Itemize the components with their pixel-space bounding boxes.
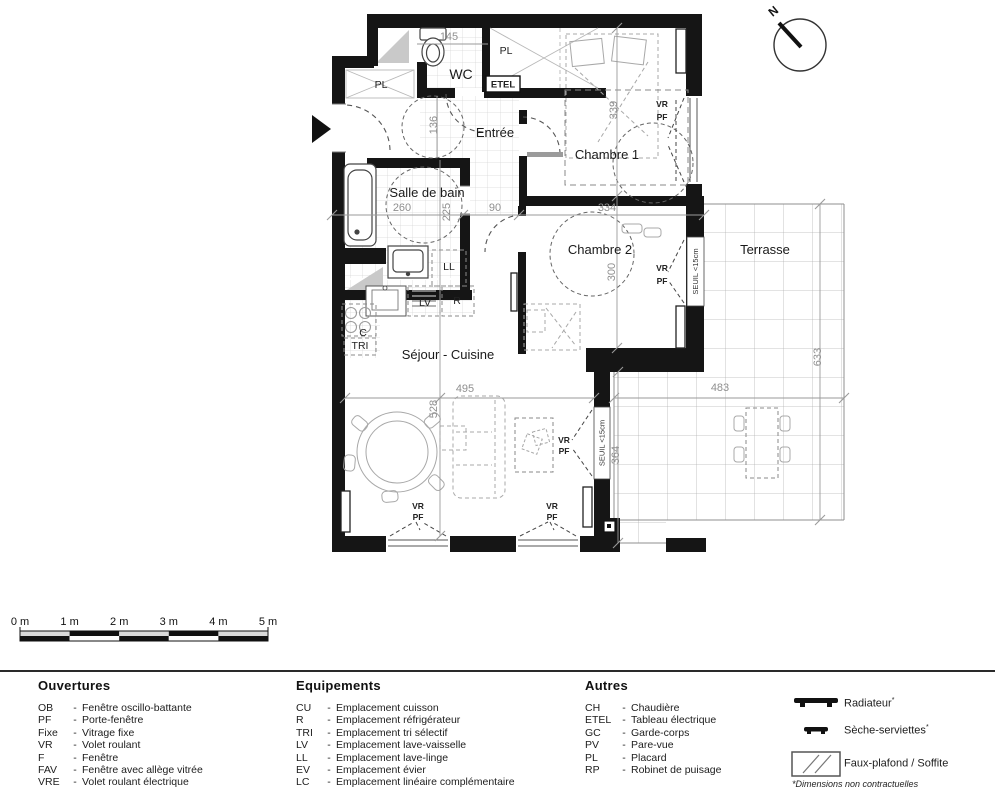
- legend-item: PL-Placard: [585, 752, 722, 764]
- room-label-entree: Entrée: [476, 125, 514, 140]
- north-label: N: [766, 3, 782, 19]
- dim-ch2-w: 334: [598, 202, 616, 214]
- legend-ouvertures-title: Ouvertures: [38, 678, 203, 693]
- r-label: R: [453, 295, 461, 307]
- dim-wc-w: 145: [440, 31, 458, 43]
- legend-item: GC-Garde-corps: [585, 727, 722, 739]
- room-label-chambre2: Chambre 2: [568, 242, 632, 257]
- vr-label-ch2: VR: [656, 263, 668, 273]
- legend-ouvertures: Ouvertures OB-Fenêtre oscillo-battante P…: [38, 678, 203, 789]
- legend-divider: [0, 670, 995, 672]
- dim-sejour-h: 528: [428, 400, 440, 418]
- legend-item: OB-Fenêtre oscillo-battante: [38, 702, 203, 714]
- legend-item: VRE-Volet roulant électrique: [38, 776, 203, 788]
- floor-plan-drawing: SEUIL <15cm SEUIL <15cm: [0, 0, 995, 668]
- floor-plan-page: SEUIL <15cm SEUIL <15cm: [0, 0, 995, 800]
- dim-sejour-w: 495: [456, 383, 474, 395]
- scale-3: 3 m: [160, 616, 178, 628]
- legend-item: PF-Porte-fenêtre: [38, 714, 203, 726]
- scale-4: 4 m: [209, 616, 227, 628]
- north-compass: N: [766, 3, 826, 71]
- vr-label-sejour-east: VR: [558, 435, 570, 445]
- room-label-terrasse: Terrasse: [740, 242, 790, 257]
- legend-footnote: *Dimensions non contractuelles: [792, 779, 918, 789]
- dim-terrasse-h: 633: [812, 348, 824, 366]
- legend-symbol-label: Sèche-serviettes*: [844, 724, 929, 737]
- legend-symbol-faux-plafond: Faux-plafond / Soffite: [788, 751, 993, 777]
- legend-item: LC-Emplacement linéaire complémentaire: [296, 776, 515, 788]
- dim-ch1-h: 339: [608, 101, 620, 119]
- legend-item: VR-Volet roulant: [38, 739, 203, 751]
- dim-bain-h: 225: [441, 203, 453, 221]
- scale-5: 5 m: [259, 616, 277, 628]
- pf-label-ch1: PF: [657, 112, 668, 122]
- dim-hall-w: 90: [489, 202, 501, 214]
- scale-bar: 0 m 1 m 2 m 3 m 4 m 5 m: [11, 616, 277, 641]
- etel-label: ETEL: [491, 80, 515, 91]
- dim-entree-w: 136: [428, 116, 440, 134]
- legend-item: FAV-Fenêtre avec allège vitrée: [38, 764, 203, 776]
- legend-symbol-label: Faux-plafond / Soffite: [844, 757, 948, 770]
- entrance-arrow-icon: [312, 115, 331, 143]
- pl-label-top: PL: [500, 45, 513, 57]
- legend-item: F-Fenêtre: [38, 752, 203, 764]
- legend-item: Fixe-Vitrage fixe: [38, 727, 203, 739]
- radiator-icon: [788, 696, 844, 710]
- legend-item: LV-Emplacement lave-vaisselle: [296, 739, 515, 751]
- faux-plafond-icon: [788, 751, 844, 777]
- pf-label-sejour-south2: PF: [547, 512, 558, 522]
- scale-0: 0 m: [11, 616, 29, 628]
- tri-label: TRI: [352, 340, 369, 352]
- legend-symbol-label: Radiateur*: [844, 697, 894, 710]
- vr-label-sejour-south1: VR: [412, 501, 424, 511]
- legend-item: TRI-Emplacement tri sélectif: [296, 727, 515, 739]
- pf-label-sejour-east: PF: [559, 446, 570, 456]
- scale-2: 2 m: [110, 616, 128, 628]
- legend-autres: Autres CH-Chaudière ETEL-Tableau électri…: [585, 678, 722, 776]
- dim-bain-w: 260: [393, 202, 411, 214]
- room-label-salle-de-bain: Salle de bain: [389, 185, 464, 200]
- pf-label-sejour-south1: PF: [413, 512, 424, 522]
- room-label-sejour: Séjour - Cuisine: [402, 347, 495, 362]
- legend-equipements-title: Equipements: [296, 678, 515, 693]
- legend-item: CU-Emplacement cuisson: [296, 702, 515, 714]
- legend-item: LL-Emplacement lave-linge: [296, 752, 515, 764]
- dim-terrasse-low-w: 483: [711, 382, 729, 394]
- lv-label: LV: [419, 297, 431, 309]
- legend-item: RP-Robinet de puisage: [585, 764, 722, 776]
- scale-bar-segments: [20, 627, 268, 641]
- legend-item: EV-Emplacement évier: [296, 764, 515, 776]
- legend-item: ETEL-Tableau électrique: [585, 714, 722, 726]
- dim-terrasse-low-h: 364: [610, 446, 622, 464]
- terrace: [614, 204, 844, 543]
- ll-label: LL: [443, 261, 455, 273]
- room-label-wc: WC: [449, 66, 472, 82]
- legend-item: R-Emplacement réfrigérateur: [296, 714, 515, 726]
- legend-item: CH-Chaudière: [585, 702, 722, 714]
- towel-dryer-icon: [788, 724, 844, 736]
- vr-label-sejour-south2: VR: [546, 501, 558, 511]
- legend-symbol-seche-serviettes: Sèche-serviettes*: [788, 724, 993, 737]
- scale-1: 1 m: [60, 616, 78, 628]
- legend-symbols: Radiateur* Sèche-serviettes* Faux-plafon…: [788, 696, 993, 791]
- legend-equipements: Equipements CU-Emplacement cuisson R-Emp…: [296, 678, 515, 789]
- door-leaf-chambre1: [527, 152, 563, 157]
- c-label: C: [359, 327, 367, 339]
- room-label-chambre1: Chambre 1: [575, 147, 639, 162]
- pl-label-left: PL: [375, 79, 388, 91]
- vr-label-ch1: VR: [656, 99, 668, 109]
- pf-label-ch2: PF: [657, 276, 668, 286]
- legend-item: PV-Pare-vue: [585, 739, 722, 751]
- legend-symbol-radiateur: Radiateur*: [788, 696, 993, 710]
- seuil-label-chambre2: SEUIL <15cm: [691, 248, 700, 294]
- dim-ch2-h: 300: [606, 263, 618, 281]
- seuil-label-sejour: SEUIL <15cm: [598, 420, 607, 466]
- legend-autres-title: Autres: [585, 678, 722, 693]
